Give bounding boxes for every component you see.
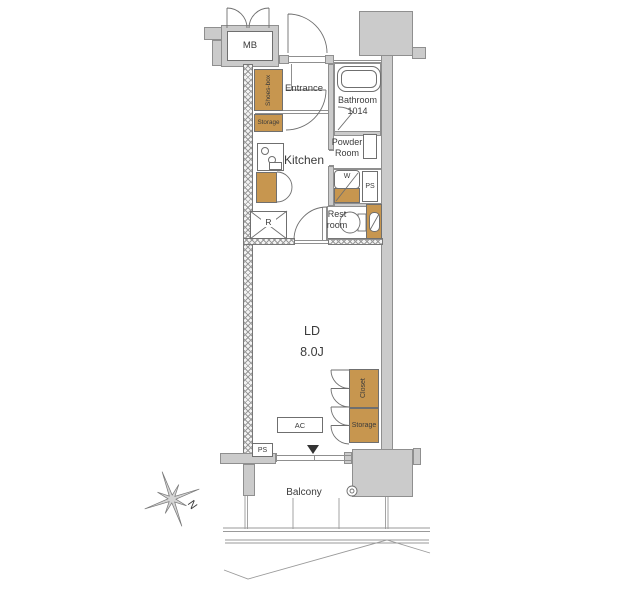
hall-door-arc-icon bbox=[286, 90, 326, 130]
living-size-label: 8.0J bbox=[287, 345, 337, 359]
restroom-label-line1: Rest bbox=[320, 209, 354, 220]
powder-label-line2: Room bbox=[325, 148, 369, 159]
restroom-label: Rest room bbox=[320, 209, 354, 230]
cabinet-door-arc-icon bbox=[277, 172, 292, 202]
balcony-railing2 bbox=[225, 540, 429, 543]
closet-door-arc-icon bbox=[331, 407, 349, 426]
entrance-label: Entrance bbox=[279, 83, 329, 94]
floor-plan: MB Shoes-box Storage Closet bbox=[0, 0, 640, 600]
entrance-door-arc-icon bbox=[288, 14, 327, 53]
refrigerator-label: R bbox=[261, 217, 276, 227]
bathroom-label-line1: Bathroom bbox=[333, 95, 382, 106]
bathroom-label-line2: 1014 bbox=[333, 106, 382, 117]
balcony-posts bbox=[293, 498, 339, 529]
washbasin-diagonal bbox=[336, 173, 358, 201]
compass-star-icon bbox=[145, 472, 200, 527]
mb-door-arc-icon bbox=[227, 8, 247, 28]
restroom-cabinet-diagonal bbox=[370, 214, 379, 230]
balcony-label: Balcony bbox=[274, 487, 334, 498]
balcony-railing bbox=[223, 528, 430, 532]
balcony-edge-right bbox=[386, 497, 389, 529]
site-boundary-lines bbox=[224, 540, 430, 579]
balcony-edge-left bbox=[245, 496, 248, 529]
faucet-icon bbox=[347, 486, 357, 496]
powder-room-label: Powder Room bbox=[325, 137, 369, 158]
bathroom-label: Bathroom 1014 bbox=[333, 95, 382, 116]
living-label: LD bbox=[287, 324, 337, 338]
closet-door-arc-icon bbox=[331, 370, 349, 389]
closet-door-arc-icon bbox=[331, 389, 349, 408]
closet-door-arc-icon bbox=[331, 426, 349, 445]
powder-label-line1: Powder bbox=[325, 137, 369, 148]
mb-door-arc-icon bbox=[249, 8, 269, 28]
restroom-label-line2: room bbox=[320, 220, 354, 231]
